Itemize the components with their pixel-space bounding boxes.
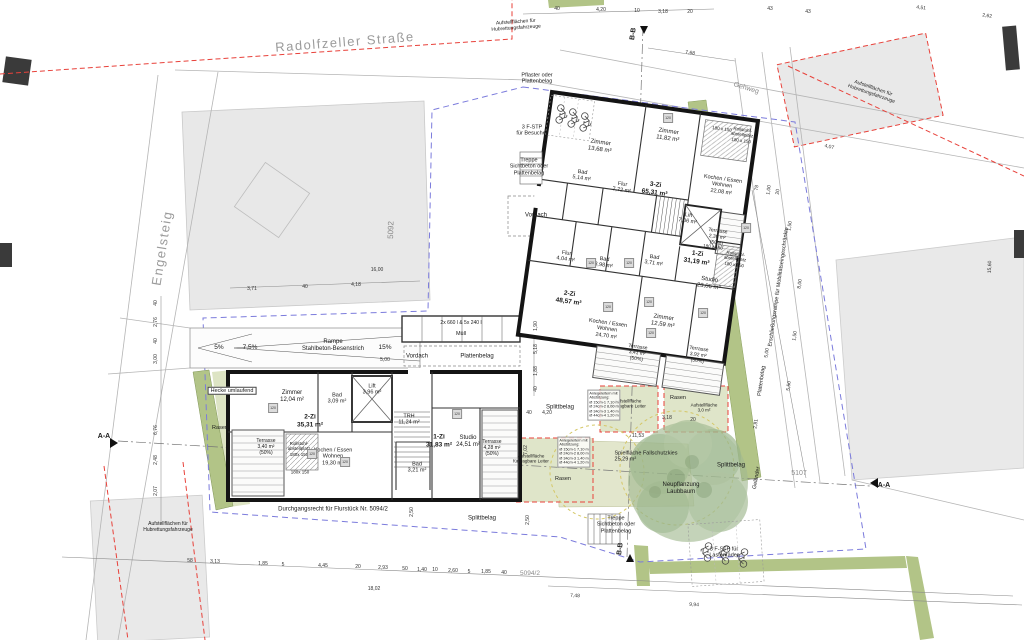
vordach-canopy-lower	[404, 346, 520, 366]
upper-entry-steps	[520, 152, 542, 184]
site-plan-page: Radolfzeller Straße Engelsteig Gehweg 50…	[0, 0, 1024, 640]
tree	[628, 420, 748, 542]
ramp	[190, 328, 420, 368]
muell-enclosure	[402, 316, 520, 342]
site-plan-drawing	[0, 0, 1024, 640]
building-lower	[228, 368, 520, 500]
building-upper	[510, 92, 757, 396]
